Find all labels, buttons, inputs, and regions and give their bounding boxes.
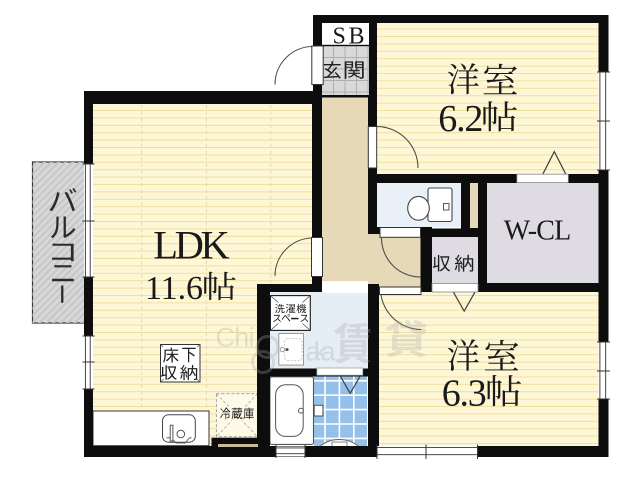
- svg-text:11.6: 11.6: [145, 270, 203, 307]
- svg-text:LDK: LDK: [153, 223, 230, 268]
- svg-text:Chi: Chi: [216, 323, 255, 353]
- svg-text:6.3: 6.3: [442, 372, 487, 414]
- svg-text:W-CL: W-CL: [504, 215, 572, 246]
- svg-text:6.2: 6.2: [438, 98, 483, 140]
- svg-text:SB: SB: [333, 24, 365, 50]
- svg-text:aka: aka: [306, 336, 337, 366]
